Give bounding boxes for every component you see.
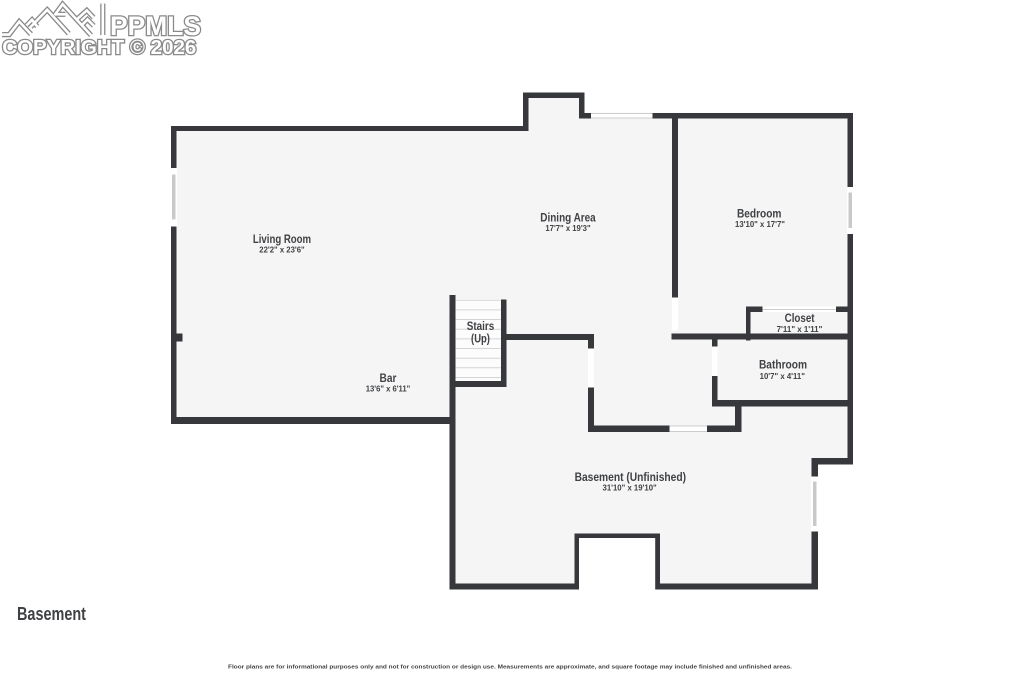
svg-text:Floor plans are for informatio: Floor plans are for informational purpos…: [228, 665, 792, 671]
svg-text:31'10" x 19'10": 31'10" x 19'10": [603, 482, 657, 492]
svg-text:COPYRIGHT © 2026: COPYRIGHT © 2026: [2, 37, 196, 59]
svg-text:10'7" x 4'11": 10'7" x 4'11": [760, 371, 805, 381]
svg-text:(Up): (Up): [471, 332, 490, 346]
svg-text:Bathroom: Bathroom: [759, 358, 807, 372]
svg-text:7'11" x 1'11": 7'11" x 1'11": [777, 324, 823, 334]
svg-text:Basement: Basement: [17, 604, 86, 624]
svg-text:17'7" x 19'3": 17'7" x 19'3": [545, 223, 590, 233]
svg-text:22'2" x 23'6": 22'2" x 23'6": [259, 244, 304, 254]
svg-text:13'6" x 6'11": 13'6" x 6'11": [366, 383, 411, 393]
svg-text:13'10" x 17'7": 13'10" x 17'7": [735, 219, 785, 229]
